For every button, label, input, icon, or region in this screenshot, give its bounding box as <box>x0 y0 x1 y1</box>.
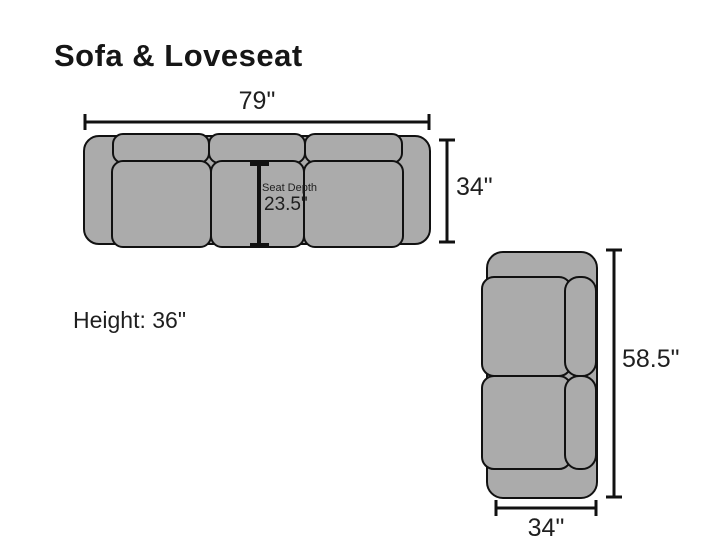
loveseat-width-label: 34" <box>516 514 576 543</box>
sofa-depth-dimension-line <box>439 140 455 242</box>
sofa-seat-cushion-left <box>112 161 211 247</box>
loveseat-back-cushion-bottom <box>565 376 596 469</box>
loveseat-length-dimension-line <box>606 250 622 497</box>
sofa-height-label: Height: 36" <box>73 307 186 334</box>
sofa-back-cushion-middle <box>209 134 305 163</box>
sofa-depth-label: 34" <box>456 173 493 202</box>
furniture-diagram-canvas <box>0 0 713 551</box>
loveseat-back-cushion-top <box>565 277 596 376</box>
sofa-dimension-diagram: Sofa & Loveseat <box>0 0 713 551</box>
sofa-back-cushion-right <box>305 134 402 163</box>
sofa-seat-depth-value: 23.5" <box>264 194 308 216</box>
sofa-width-dimension-line <box>85 114 429 130</box>
loveseat-top-view <box>482 252 597 498</box>
sofa-back-cushion-left <box>113 134 209 163</box>
sofa-seat-depth-title: Seat Depth <box>262 182 317 194</box>
loveseat-seat-cushion-top <box>482 277 571 376</box>
loveseat-seat-cushion-bottom <box>482 376 571 469</box>
sofa-width-label: 79" <box>227 87 287 116</box>
sofa-seat-cushion-right <box>304 161 403 247</box>
loveseat-length-label: 58.5" <box>622 345 680 374</box>
